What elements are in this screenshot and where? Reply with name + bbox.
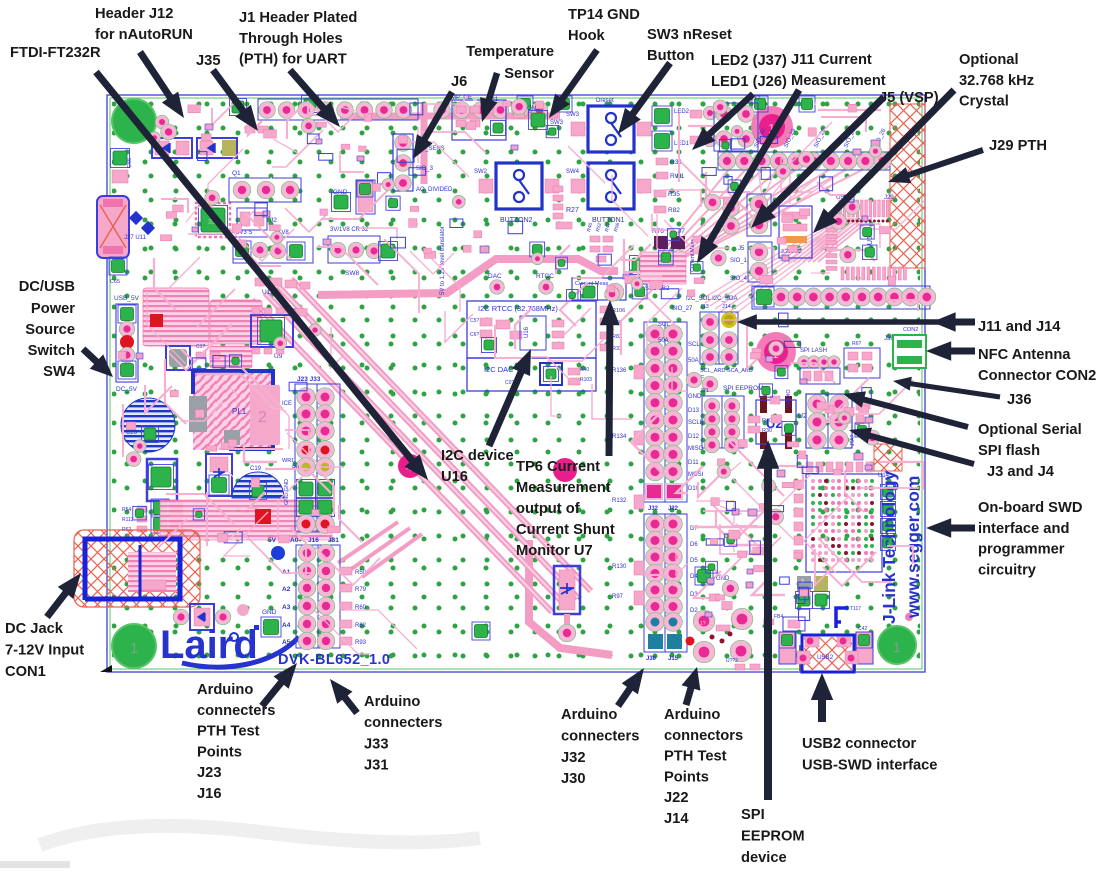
svg-text:32.768 kHz: 32.768 kHz <box>959 73 1034 89</box>
svg-text:C66: C66 <box>127 158 133 168</box>
svg-text:TP6 Current: TP6 Current <box>516 459 600 475</box>
svg-text:(PTH) for UART: (PTH) for UART <box>239 52 347 68</box>
svg-text:C1?: C1? <box>196 344 205 350</box>
svg-text:SIO_27: SIO_27 <box>672 306 693 312</box>
svg-text:SCL_ARD SCA_ARD: SCL_ARD SCA_ARD <box>700 368 753 374</box>
svg-text:I2C DAC: I2C DAC <box>484 365 514 374</box>
svg-text:Sensor: Sensor <box>504 66 554 82</box>
svg-text:J5: J5 <box>738 246 745 252</box>
svg-text:J22: J22 <box>664 790 689 806</box>
svg-text:connecters: connecters <box>561 728 639 744</box>
svg-text:U??2: U??2 <box>726 658 738 664</box>
svg-text:J36: J36 <box>1007 392 1032 408</box>
svg-text:U5: U5 <box>867 236 874 245</box>
svg-text:RTCC: RTCC <box>536 273 554 280</box>
svg-text:PL1: PL1 <box>232 407 247 416</box>
svg-text:LED2: LED2 <box>674 109 690 115</box>
svg-text:Temperature: Temperature <box>466 44 554 60</box>
svg-text:Switch: Switch <box>28 343 75 359</box>
svg-text:7-12V Input: 7-12V Input <box>5 643 84 659</box>
svg-text:J22: J22 <box>668 506 679 512</box>
svg-text:SCL: SCL <box>658 322 670 328</box>
svg-text:A0: A0 <box>290 537 299 544</box>
svg-text:for nAutoRUN: for nAutoRUN <box>95 27 193 43</box>
svg-text:TP14 GND: TP14 GND <box>568 7 640 23</box>
svg-text:EEPROM: EEPROM <box>741 829 805 845</box>
svg-text:R82: R82 <box>668 207 680 214</box>
svg-text:J30: J30 <box>561 771 586 787</box>
svg-text:J33: J33 <box>364 736 389 752</box>
svg-text:D12: D12 <box>688 434 700 440</box>
svg-text:device: device <box>741 850 787 866</box>
svg-text:C26: C26 <box>126 430 138 436</box>
svg-text:J11 Current: J11 Current <box>791 52 872 68</box>
svg-text:RW1: RW1 <box>670 173 685 180</box>
svg-text:Q1: Q1 <box>232 170 241 177</box>
svg-text:J27 U11: J27 U11 <box>124 235 147 241</box>
svg-text:J5 (VSP): J5 (VSP) <box>879 90 939 106</box>
svg-text:D5: D5 <box>690 558 698 564</box>
svg-text:FB4: FB4 <box>774 614 783 620</box>
svg-text:AO_DIVIDED: AO_DIVIDED <box>416 187 453 193</box>
svg-text:J3 and J4: J3 and J4 <box>987 464 1055 480</box>
svg-text:Hook: Hook <box>568 28 606 44</box>
svg-text:U16: U16 <box>524 326 530 338</box>
svg-text:J16: J16 <box>197 786 222 802</box>
svg-text:Monitor U7: Monitor U7 <box>516 543 593 559</box>
svg-text:R40: R40 <box>580 367 589 373</box>
svg-text:D11: D11 <box>688 460 699 466</box>
svg-text:R136: R136 <box>612 368 627 374</box>
svg-text:Power: Power <box>31 301 75 317</box>
svg-text:1: 1 <box>893 639 901 655</box>
svg-text:Through Holes: Through Holes <box>239 31 343 47</box>
svg-text:D6: D6 <box>690 542 698 548</box>
svg-text:ICE: ICE <box>282 401 292 407</box>
svg-text:C19: C19 <box>250 466 262 472</box>
svg-text:J11 and J14: J11 and J14 <box>978 319 1061 335</box>
svg-text:Arduino: Arduino <box>561 707 617 723</box>
svg-text:Current Shunt: Current Shunt <box>516 522 615 538</box>
svg-text:output of: output of <box>516 501 580 517</box>
svg-text:I2C RTCC (32.768MHz): I2C RTCC (32.768MHz) <box>478 304 558 313</box>
svg-text:SW8: SW8 <box>345 270 359 277</box>
svg-text:R132: R132 <box>612 498 627 504</box>
svg-text:MISO: MISO <box>688 446 704 452</box>
svg-text:Laird: Laird <box>160 623 258 667</box>
svg-text:J29 PTH: J29 PTH <box>989 138 1047 154</box>
svg-text:R79: R79 <box>355 587 367 593</box>
svg-text:circuitry: circuitry <box>978 562 1037 578</box>
svg-text:LED1 (J26): LED1 (J26) <box>711 74 787 90</box>
svg-text:J32: J32 <box>561 750 586 766</box>
svg-text:R54: R54 <box>122 507 131 513</box>
svg-text:R134: R134 <box>612 434 627 440</box>
svg-text:SWDIO: SWDIO <box>786 389 792 408</box>
svg-text:WR1: WR1 <box>282 458 294 464</box>
svg-text:SPI flash: SPI flash <box>978 443 1040 459</box>
svg-text:Arduino: Arduino <box>197 682 253 698</box>
svg-text:R35: R35 <box>668 191 680 198</box>
svg-text:A4: A4 <box>282 622 291 629</box>
svg-text:CON2: CON2 <box>903 327 918 333</box>
svg-text:J1 Header Plated: J1 Header Plated <box>239 10 357 26</box>
svg-text:C65: C65 <box>110 279 120 285</box>
svg-text:BUTTON2: BUTTON2 <box>500 217 533 224</box>
svg-text:LED2 (J37): LED2 (J37) <box>711 53 787 69</box>
svg-text:U16: U16 <box>441 469 468 485</box>
svg-text:J16: J16 <box>308 537 319 544</box>
svg-text:C42: C42 <box>858 626 867 632</box>
svg-text:J31: J31 <box>364 758 389 774</box>
svg-text:PTH Test: PTH Test <box>197 724 260 740</box>
svg-text:J-Link Technology: J-Link Technology <box>879 470 899 624</box>
svg-text:SCLK: SCLK <box>688 420 704 426</box>
svg-text:J15: J15 <box>668 656 679 662</box>
svg-text:Measurement: Measurement <box>516 480 611 496</box>
svg-text:FTDI-FT232R: FTDI-FT232R <box>10 45 101 61</box>
svg-text:Header J12: Header J12 <box>95 6 173 22</box>
svg-text:A2: A2 <box>282 586 291 593</box>
svg-text:J23: J23 <box>197 765 222 781</box>
svg-text:SPI EEPROM: SPI EEPROM <box>723 385 763 392</box>
svg-text:SIO_4: SIO_4 <box>730 276 748 282</box>
svg-text:J13: J13 <box>700 304 709 310</box>
svg-text:Source: Source <box>25 322 75 338</box>
svg-text:DC/USB: DC/USB <box>19 279 75 295</box>
svg-text:USB2 connector: USB2 connector <box>802 736 917 752</box>
svg-text:T117: T117 <box>850 606 861 612</box>
svg-text:50A: 50A <box>688 358 699 364</box>
svg-text:JTA?: JTA? <box>850 434 856 446</box>
svg-text:Dreset: Dreset <box>596 98 614 104</box>
svg-text:J32: J32 <box>648 506 659 512</box>
svg-text:Points: Points <box>664 769 709 785</box>
svg-text:Measurement: Measurement <box>791 73 886 89</box>
svg-text:50A: 50A <box>658 338 669 344</box>
svg-text:1?: 1? <box>700 621 706 627</box>
svg-text:SPI LASH: SPI LASH <box>800 348 827 354</box>
svg-text:R40: R40 <box>762 418 772 424</box>
svg-text:C6?: C6? <box>470 332 479 338</box>
svg-text:SCL: SCL <box>688 342 700 348</box>
svg-text:R62: R62 <box>355 623 367 629</box>
svg-text:connecters: connecters <box>364 715 442 731</box>
svg-text:I2C device: I2C device <box>441 448 514 464</box>
svg-text:SW4: SW4 <box>43 364 76 380</box>
svg-text:SW2: SW2 <box>474 169 488 175</box>
svg-text:J30: J30 <box>646 656 657 662</box>
svg-text:programmer: programmer <box>978 542 1065 558</box>
svg-text:Optional Serial: Optional Serial <box>978 422 1082 438</box>
svg-text:R27: R27 <box>566 207 579 214</box>
svg-text:SPI: SPI <box>741 807 765 823</box>
svg-text:GND: GND <box>333 189 348 196</box>
svg-text:interface and: interface and <box>978 521 1069 537</box>
svg-text:connectors: connectors <box>664 728 743 744</box>
svg-text:DC_5V: DC_5V <box>116 386 138 393</box>
svg-text:5V to 1,2V level translator: 5V to 1,2V level translator <box>440 226 446 295</box>
svg-text:A5: A5 <box>282 639 291 646</box>
svg-text:R97: R97 <box>612 594 624 600</box>
svg-text:SIO_3: SIO_3 <box>416 166 434 172</box>
svg-text:2: 2 <box>258 409 267 426</box>
svg-text:GND: GND <box>688 394 702 400</box>
svg-text:Crystal: Crystal <box>959 94 1009 110</box>
svg-text:NFC Antenna: NFC Antenna <box>978 347 1071 363</box>
svg-text:J2: J2 <box>270 217 277 224</box>
svg-text:SIO_1: SIO_1 <box>730 258 748 264</box>
svg-text:Connector CON2: Connector CON2 <box>978 368 1096 384</box>
svg-text:A3: A3 <box>282 604 291 611</box>
svg-text:J6: J6 <box>451 74 467 90</box>
svg-text:R6?: R6? <box>852 341 861 347</box>
svg-text:Points: Points <box>197 744 242 760</box>
svg-text:D4: D4 <box>690 574 698 580</box>
svg-text:5V: 5V <box>268 537 277 544</box>
svg-text:Optional: Optional <box>959 52 1019 68</box>
svg-text:R103: R103 <box>580 377 592 383</box>
svg-text:J35: J35 <box>196 53 221 69</box>
svg-text:R93: R93 <box>355 640 367 646</box>
svg-text:SW4: SW4 <box>566 169 580 175</box>
svg-text:D13: D13 <box>688 408 700 414</box>
svg-text:CON1: CON1 <box>5 664 46 680</box>
svg-text:Button: Button <box>647 48 694 64</box>
svg-text:GND: GND <box>262 609 277 616</box>
svg-text:J14: J14 <box>664 811 689 827</box>
svg-text:SW3 nReset: SW3 nReset <box>647 27 732 43</box>
svg-text:R30: R30 <box>762 428 772 434</box>
svg-text:R130: R130 <box>612 564 627 570</box>
svg-text:USB_5V: USB_5V <box>114 295 140 302</box>
svg-text:U5B2: U5B2 <box>817 654 834 661</box>
svg-text:Arduino: Arduino <box>364 694 420 710</box>
svg-text:C5?: C5? <box>470 318 479 324</box>
svg-text:J31: J31 <box>328 537 339 544</box>
svg-text:SW3: SW3 <box>566 112 580 118</box>
svg-text:J21: J21 <box>700 388 709 394</box>
svg-text:On-board SWD: On-board SWD <box>978 500 1082 516</box>
svg-text:J29: J29 <box>884 195 894 201</box>
svg-text:DC Jack: DC Jack <box>5 621 64 637</box>
svg-text:Arduino: Arduino <box>664 707 720 723</box>
svg-text:1: 1 <box>130 640 138 657</box>
svg-text:DAC: DAC <box>488 273 502 280</box>
svg-text:R113: R113 <box>122 517 134 523</box>
svg-text:LED1: LED1 <box>674 141 690 147</box>
svg-text:PTH Test: PTH Test <box>664 749 727 765</box>
svg-text:USB-SWD interface: USB-SWD interface <box>802 758 937 774</box>
svg-text:J14: J14 <box>722 304 731 310</box>
svg-text:R76: R76 <box>652 228 664 235</box>
